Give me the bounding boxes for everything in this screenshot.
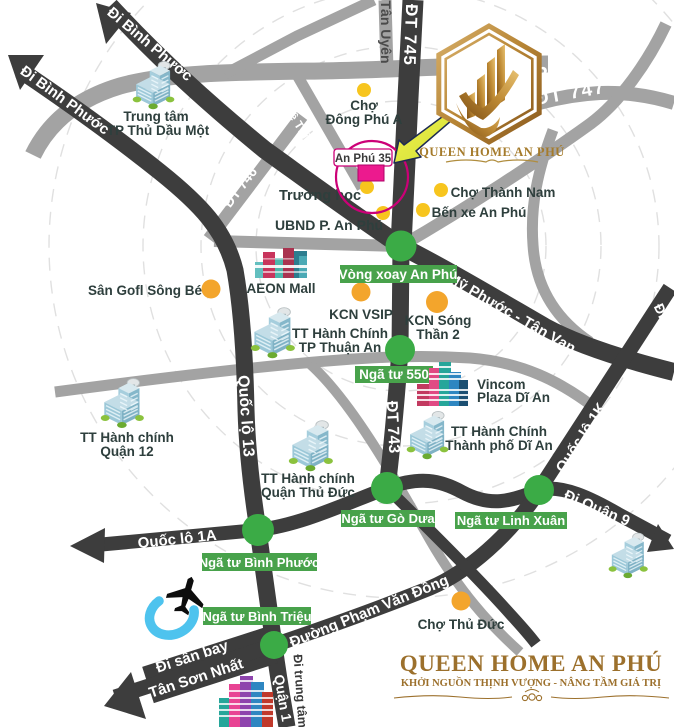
svg-text:Bến xe An Phú: Bến xe An Phú	[432, 205, 527, 220]
svg-text:Sân Gofl Sông Bé: Sân Gofl Sông Bé	[88, 283, 202, 298]
svg-text:Chợ Thành Nam: Chợ Thành Nam	[451, 185, 556, 200]
svg-text:KCN VSIP: KCN VSIP	[329, 307, 393, 322]
svg-text:Ngã tư Gò Dưa: Ngã tư Gò Dưa	[341, 511, 435, 526]
svg-text:Trung tâm: Trung tâm	[123, 109, 188, 124]
svg-text:Tân Uyên: Tân Uyên	[378, 0, 394, 63]
svg-text:KCN Sóng: KCN Sóng	[405, 313, 472, 328]
svg-text:Ngã tư 550: Ngã tư 550	[359, 367, 429, 382]
svg-text:An Phú 35: An Phú 35	[335, 153, 392, 165]
svg-text:TT Hành Chính: TT Hành Chính	[292, 326, 388, 341]
svg-text:TP Thuận An: TP Thuận An	[299, 340, 382, 355]
svg-text:Đông Phú A: Đông Phú A	[326, 112, 403, 127]
svg-text:Ngã tư Bình Phước: Ngã tư Bình Phước	[199, 555, 320, 570]
svg-text:Chợ Thủ Đức: Chợ Thủ Đức	[418, 617, 505, 632]
svg-text:Thành phố Dĩ An: Thành phố Dĩ An	[445, 438, 552, 453]
svg-text:QUEEN HOME AN PHÚ: QUEEN HOME AN PHÚ	[419, 145, 565, 159]
svg-text:Trường học: Trường học	[279, 188, 361, 204]
svg-text:Ngã tư Linh Xuân: Ngã tư Linh Xuân	[457, 513, 565, 528]
svg-text:QUEEN HOME AN PHÚ: QUEEN HOME AN PHÚ	[400, 651, 663, 676]
svg-text:TT Hành chính: TT Hành chính	[80, 430, 174, 445]
svg-text:TT Hành chính: TT Hành chính	[261, 471, 355, 486]
svg-text:Vòng xoay An Phú: Vòng xoay An Phú	[339, 267, 458, 282]
svg-text:Ngã tư Bình Triệu: Ngã tư Bình Triệu	[202, 609, 311, 624]
svg-text:Thần 2: Thần 2	[416, 327, 460, 342]
svg-text:UBND P. An Phú: UBND P. An Phú	[275, 217, 383, 233]
svg-text:KHỞI NGUỒN THỊNH VƯỢNG - NÂNG: KHỞI NGUỒN THỊNH VƯỢNG - NÂNG TẦM GIÁ TR…	[401, 676, 661, 689]
svg-text:Quận Thủ Đức: Quận Thủ Đức	[261, 485, 355, 500]
svg-text:Plaza Dĩ An: Plaza Dĩ An	[477, 390, 550, 405]
svg-text:TT Hành Chính: TT Hành Chính	[451, 424, 547, 439]
svg-text:Quận 12: Quận 12	[100, 444, 153, 459]
svg-text:Chợ: Chợ	[350, 98, 378, 113]
svg-text:TP Thủ Dầu Một: TP Thủ Dầu Một	[107, 123, 210, 138]
svg-text:AEON Mall: AEON Mall	[246, 281, 315, 296]
svg-text:ĐT 743: ĐT 743	[383, 400, 403, 453]
svg-text:ĐT 745: ĐT 745	[400, 4, 421, 66]
